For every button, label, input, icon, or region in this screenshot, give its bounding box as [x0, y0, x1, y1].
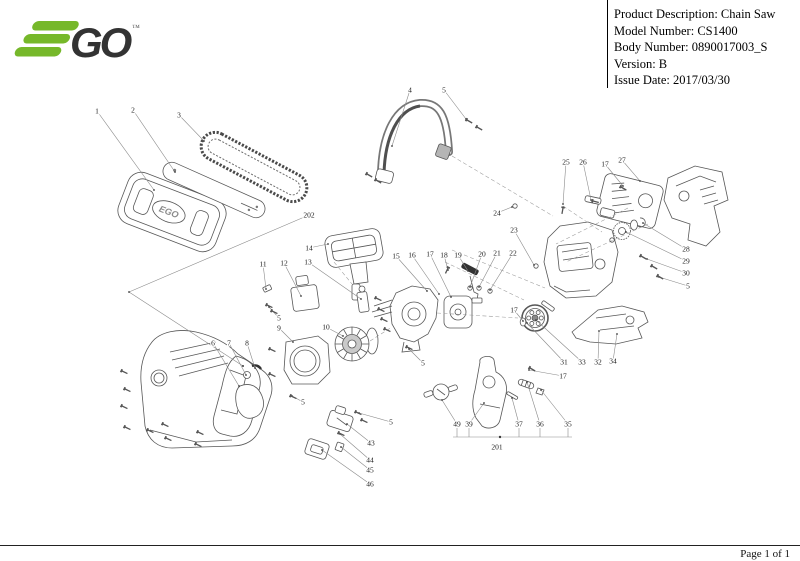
part-callout-12: 12 — [280, 258, 288, 267]
part-washer — [520, 318, 526, 326]
part-callout-7: 7 — [227, 338, 231, 347]
part-right-housing — [664, 166, 728, 246]
part-callout-16: 16 — [408, 250, 416, 259]
part-callout-24: 24 — [493, 208, 501, 217]
part-callout-39: 39 — [465, 419, 473, 428]
screw-icon — [266, 303, 273, 309]
page-number: Page 1 of 1 — [740, 548, 790, 560]
screw-icon — [381, 317, 388, 323]
part-callout-5: 5 — [277, 313, 281, 322]
part-oil-cap — [423, 384, 458, 400]
part-callout-6: 6 — [211, 338, 215, 347]
part-callout-11: 11 — [259, 259, 266, 268]
part-callout-17: 17 — [601, 159, 609, 168]
screw-icon — [444, 267, 450, 274]
screw-icon — [269, 372, 276, 378]
exploded-diagram: EGO — [0, 0, 800, 561]
screw-icon — [560, 207, 564, 214]
washer-icon — [513, 204, 517, 208]
footer-rule — [0, 545, 800, 546]
part-callout-49: 49 — [453, 419, 461, 428]
screw-icon — [290, 394, 297, 400]
screw-icon — [366, 172, 373, 178]
parts-diagram-page: EGO GO ™ Product Description: Chain Saw … — [0, 0, 800, 561]
part-inner-housing — [544, 222, 618, 298]
part-callout-23: 23 — [510, 225, 518, 234]
part-callout-10: 10 — [322, 322, 330, 331]
part-clip — [536, 388, 544, 395]
part-callout-202: 202 — [303, 210, 315, 219]
part-callout-4: 4 — [408, 85, 412, 94]
part-callout-45: 45 — [366, 465, 374, 474]
part-callout-201: 201 — [491, 442, 503, 451]
part-callout-37: 37 — [515, 419, 523, 428]
screw-icon — [338, 431, 345, 437]
screw-icon — [640, 254, 647, 260]
part-callout-35: 35 — [564, 419, 572, 428]
part-callout-25: 25 — [562, 157, 570, 166]
part-callout-17: 17 — [426, 249, 434, 258]
part-callout-36: 36 — [536, 419, 544, 428]
part-callout-5: 5 — [686, 281, 690, 290]
part-oil-pump — [473, 356, 507, 428]
screw-icon — [651, 264, 658, 270]
part-callout-20: 20 — [478, 249, 486, 258]
part-callout-5: 5 — [389, 417, 393, 426]
part-callout-26: 26 — [579, 157, 587, 166]
part-callout-30: 30 — [682, 268, 690, 277]
part-callout-5: 5 — [442, 85, 446, 94]
part-motor-mount — [284, 336, 330, 384]
screw-icon — [269, 347, 276, 353]
screw-icon — [466, 118, 473, 124]
part-callout-8: 8 — [245, 338, 249, 347]
screw-icon — [121, 404, 128, 410]
part-motor — [335, 327, 378, 361]
part-callout-14: 14 — [305, 243, 313, 252]
screw-icon — [121, 369, 128, 375]
part-callout-5: 5 — [301, 397, 305, 406]
part-callout-28: 28 — [682, 244, 690, 253]
part-callout-32: 32 — [594, 357, 602, 366]
part-callout-22: 22 — [509, 248, 517, 257]
part-switch-a — [326, 404, 356, 432]
part-callout-19: 19 — [454, 250, 462, 259]
part-callout-46: 46 — [366, 479, 374, 488]
part-brake-assembly — [572, 306, 648, 344]
part-callout-1: 1 — [95, 106, 99, 115]
part-callout-17: 17 — [559, 371, 567, 380]
part-callout-18: 18 — [440, 250, 448, 259]
part-callout-13: 13 — [304, 257, 312, 266]
screw-icon — [657, 274, 664, 280]
part-side-plate — [444, 296, 472, 328]
screw-icon — [384, 327, 391, 333]
screw-icon — [124, 387, 131, 393]
part-callout-15: 15 — [392, 251, 400, 260]
part-callout-43: 43 — [367, 438, 375, 447]
part-filter-cover — [596, 172, 665, 229]
part-callout-29: 29 — [682, 256, 690, 265]
part-switch-b — [304, 438, 330, 460]
part-callout-2: 2 — [131, 105, 135, 114]
part-callout-17: 17 — [510, 305, 518, 314]
part-callout-44: 44 — [366, 455, 374, 464]
part-callout-3: 3 — [177, 110, 181, 119]
part-callout-21: 21 — [493, 248, 501, 257]
part-spacer — [335, 442, 344, 452]
part-callout-5: 5 — [421, 358, 425, 367]
washer-icon — [534, 264, 538, 268]
part-worm-gear — [517, 378, 534, 389]
part-callout-9: 9 — [277, 323, 281, 332]
part-top-cover — [324, 227, 385, 300]
part-callout-27: 27 — [618, 155, 626, 164]
screw-icon — [355, 410, 362, 416]
screw-icon — [406, 345, 413, 351]
screw-icon — [476, 125, 483, 131]
screw-icon — [529, 366, 536, 372]
part-callout-31: 31 — [560, 357, 568, 366]
part-callout-33: 33 — [578, 357, 586, 366]
screw-icon — [375, 296, 382, 302]
screw-icon — [361, 418, 368, 424]
part-front-handle — [375, 103, 452, 184]
screw-icon — [124, 425, 131, 431]
part-callout-34: 34 — [609, 356, 617, 365]
